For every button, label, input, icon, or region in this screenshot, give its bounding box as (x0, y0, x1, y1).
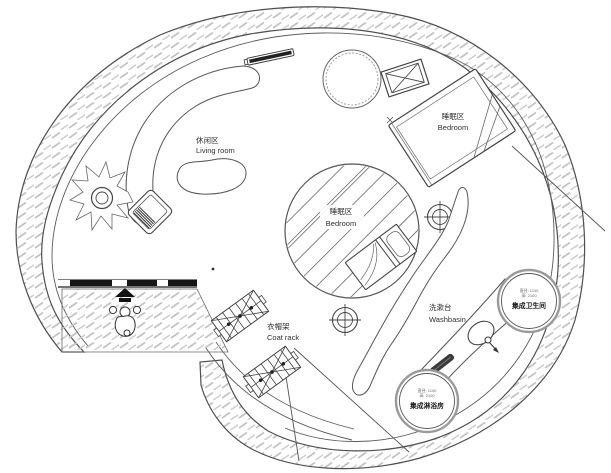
entry-corridor (58, 280, 228, 353)
crosshair-marker-icon (329, 304, 361, 336)
bedroom-upper-label-en: Bedroom (438, 123, 468, 132)
washbasin-label-en: Washbasin (429, 315, 466, 324)
coat-rack-label-en: Coat rack (267, 333, 299, 342)
bedroom-center-label-zh: 睡眠区 (330, 207, 353, 216)
shower-pod-spec-height: 高: 2100 (419, 392, 435, 398)
corridor-door-segments (70, 280, 197, 286)
dot-marker (212, 268, 215, 271)
tv-cabinet (244, 49, 294, 66)
coat-rack-1 (208, 288, 271, 344)
shower-pod-label: 集成淋浴房 (409, 401, 444, 410)
washbasin-label-zh: 洗漱台 (429, 302, 452, 312)
bathroom-pod-spec-height: 高: 2100 (521, 292, 537, 298)
coat-rack-2 (240, 344, 303, 400)
bedroom-upper-label-zh: 睡眠区 (442, 112, 465, 121)
coffee-table (177, 159, 246, 194)
round-side-table (323, 50, 381, 108)
living-room-label-zh: 休闲区 (196, 135, 219, 145)
plant-icon (70, 162, 133, 230)
corner-marker (387, 117, 393, 123)
shower-pod: 直径: 1100 高: 2100 集成淋浴房 (396, 370, 458, 432)
bedroom-center-label-en: Bedroom (326, 219, 356, 228)
bathroom-pod: 直径: 1100 高: 2100 集成卫生间 (498, 270, 560, 332)
floor-plan-canvas: 休闲区 Living room 睡眠区 Bedroom (0, 0, 611, 473)
corridor-floor (62, 289, 228, 352)
coat-rack-label-zh: 衣帽架 (267, 321, 290, 331)
bathroom-pod-label: 集成卫生间 (511, 301, 546, 310)
equipment-box-icon (381, 59, 429, 97)
living-room-label-en: Living room (196, 146, 235, 155)
floor-plan-svg: 休闲区 Living room 睡眠区 Bedroom (0, 0, 611, 473)
